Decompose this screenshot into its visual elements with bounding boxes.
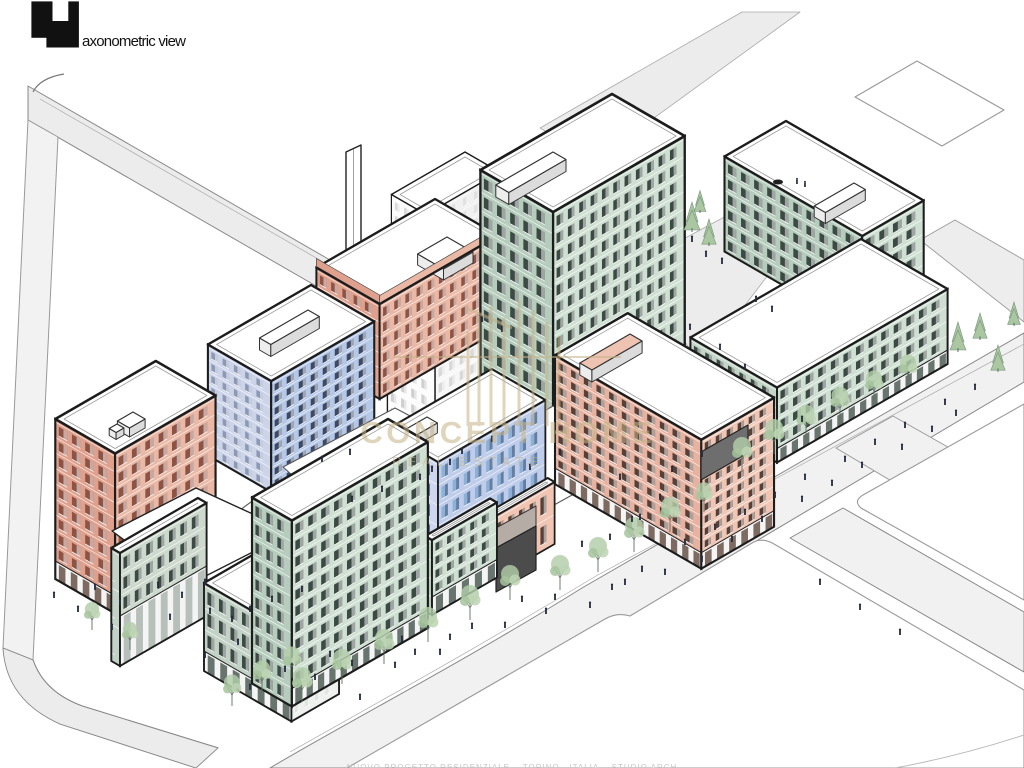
svg-text:CONCEPT HOME: CONCEPT HOME [360, 415, 655, 450]
svg-text:axonometric view: axonometric view [82, 33, 186, 50]
svg-text:REAL ESTATE: REAL ESTATE [392, 454, 544, 469]
svg-text:NUOVO PROGETTO RESIDENZIALE: NUOVO PROGETTO RESIDENZIALE TORINO ITALI… [347, 763, 678, 768]
